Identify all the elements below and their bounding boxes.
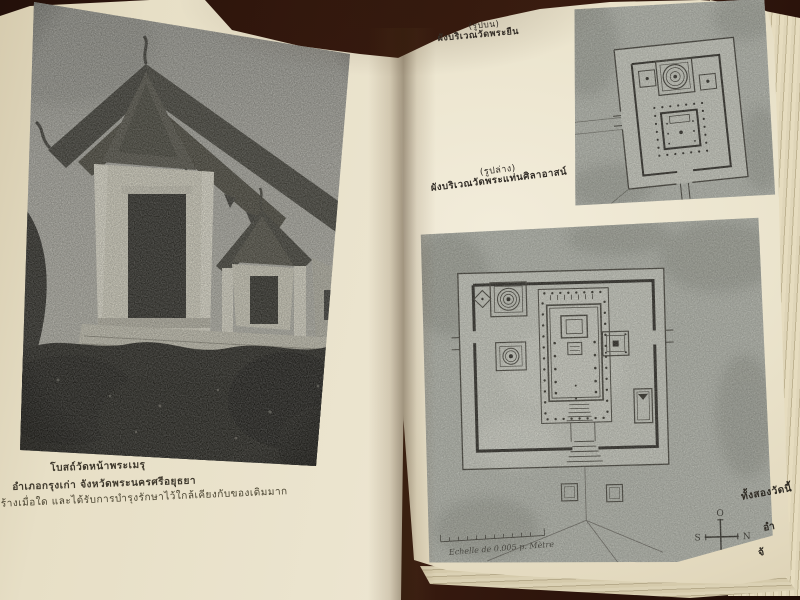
site-plan-lower-figure: Echelle de 0.005 p. Mètre O S N E (418, 215, 777, 574)
temple-photo (18, 0, 352, 470)
open-book-photograph: โบสถ์วัดหน้าพระเมรุ อำเภอกรุงเก่า จังหวั… (0, 0, 800, 600)
corner-note-line-2: อำ (762, 519, 777, 536)
site-plan-upper-figure (564, 0, 781, 216)
